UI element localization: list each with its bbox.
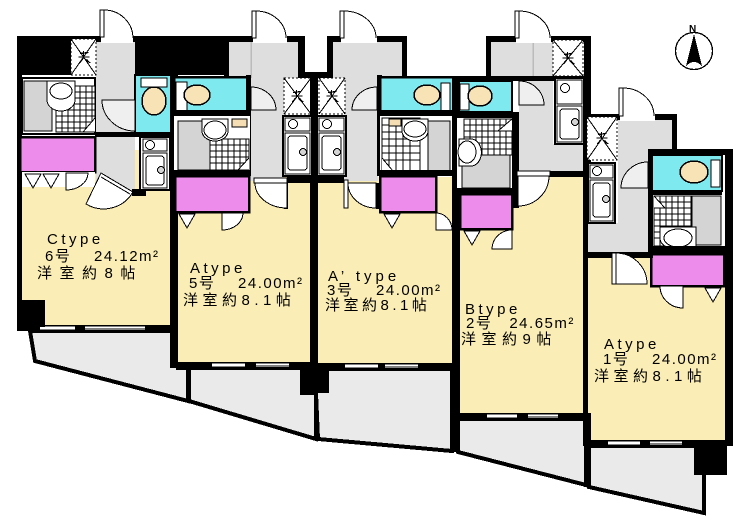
svg-text:Ctype: Ctype bbox=[47, 231, 104, 248]
svg-text:洋室約8.1帖: 洋室約8.1帖 bbox=[594, 368, 706, 385]
svg-text:N: N bbox=[689, 24, 696, 35]
svg-text:洋室約8帖: 洋室約8帖 bbox=[37, 265, 143, 282]
svg-text:洋室約8.1帖: 洋室約8.1帖 bbox=[183, 292, 295, 309]
svg-text:5号 24.00m²: 5号 24.00m² bbox=[189, 275, 304, 292]
svg-text:洋室約9帖: 洋室約9帖 bbox=[461, 331, 557, 348]
svg-text:洋室約8.1帖: 洋室約8.1帖 bbox=[325, 297, 430, 314]
svg-text:6号 24.12m²: 6号 24.12m² bbox=[45, 248, 160, 265]
svg-text:2号 24.65m²: 2号 24.65m² bbox=[466, 315, 575, 332]
svg-text:1号 24.00m²: 1号 24.00m² bbox=[603, 351, 718, 368]
